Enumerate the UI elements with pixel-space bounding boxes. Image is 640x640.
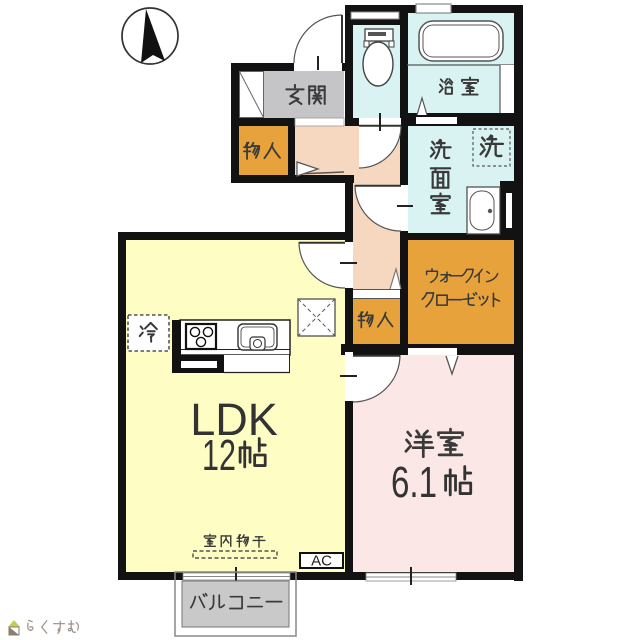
svg-text:12: 12 [202, 431, 236, 480]
svg-text:6.1: 6.1 [391, 458, 437, 507]
svg-text:AC: AC [311, 553, 332, 570]
